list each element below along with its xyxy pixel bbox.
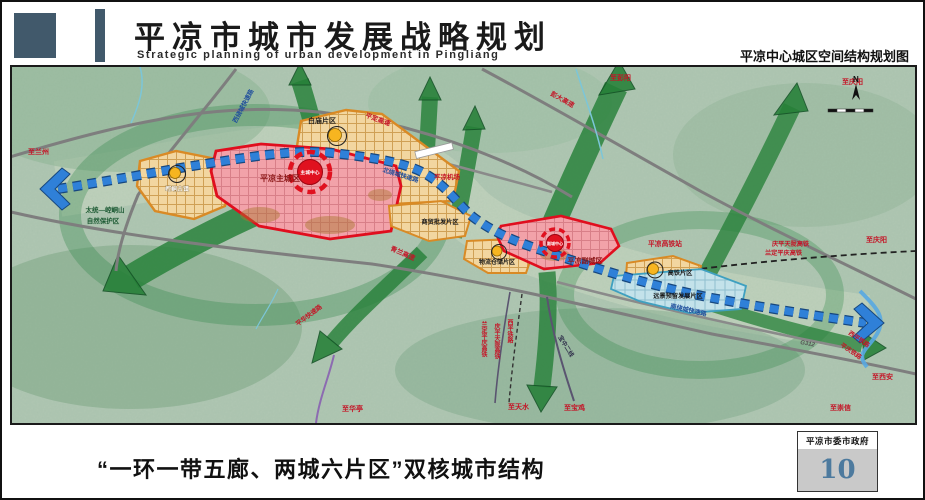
label-hsr-station: 平凉高铁站 [648, 239, 682, 248]
logo-divider-bar [95, 9, 105, 62]
agency-name: 平凉市委市政府 [798, 432, 877, 447]
label-nature-reserve-line2: 自然保护区 [87, 216, 120, 225]
map-caption: “一环一带五廊、两城六片区”双核城市结构 [97, 452, 545, 484]
label-to-huating: 至华亭 [342, 404, 363, 413]
page-subtitle-en: Strategic planning of urban development … [137, 49, 500, 61]
label-sub-center: 副城中心 [547, 240, 563, 246]
label-to-tianshui: 至天水 [508, 402, 530, 411]
scale-bar [828, 109, 873, 112]
footer-box: 平凉市委市政府 10 [797, 431, 878, 492]
compass-n-label: N [853, 75, 859, 84]
label-nature-reserve-line1: 太统—崆峒山 [85, 205, 125, 214]
label-rail-qptl-east: 庆平天陇高铁 [771, 240, 810, 248]
planning-map: 主城中心 副城中心 至兰州 太统—崆峒山 自然保护区 崆峒古镇 西绕城快速路 白… [10, 65, 917, 425]
label-to-pengyang: 至彭阳 [610, 73, 631, 82]
planning-document-page: 平凉市城市发展战略规划 Strategic planning of urban … [0, 0, 925, 500]
label-to-baoji: 至宝鸡 [564, 403, 585, 412]
label-zone-sub-city: 平凉副城区 [568, 256, 603, 265]
map-sheet-title: 平凉中心城区空间结构规划图 [740, 46, 909, 65]
label-to-lanzhou: 至兰州 [28, 147, 49, 156]
label-zone-baimiao: 白庙片区 [308, 116, 336, 125]
label-to-chongxin: 至崇信 [830, 403, 851, 412]
label-zone-main-city: 平凉主城区 [260, 173, 300, 183]
label-rail-ldpq-east: 兰定平庆高铁 [765, 249, 803, 257]
label-zone-hsr: 高铁片区 [668, 269, 694, 277]
logo-square [14, 13, 56, 58]
page-number: 10 [798, 449, 877, 491]
label-zone-kongtong: 崆峒古镇 [165, 185, 189, 193]
label-zone-trade: 商贸批发片区 [421, 218, 459, 226]
label-to-xian: 至西安 [872, 372, 893, 381]
label-rail-xiping-south: 西平铁路 [506, 318, 513, 344]
label-to-qingyang-right: 至庆阳 [866, 235, 887, 244]
label-zone-logistics: 物流仓储片区 [479, 258, 515, 266]
label-zone-reserve: 远景预留发展片区 [653, 292, 703, 300]
label-main-center: 主城中心 [300, 169, 319, 176]
label-airport: 平凉机场 [434, 172, 461, 181]
